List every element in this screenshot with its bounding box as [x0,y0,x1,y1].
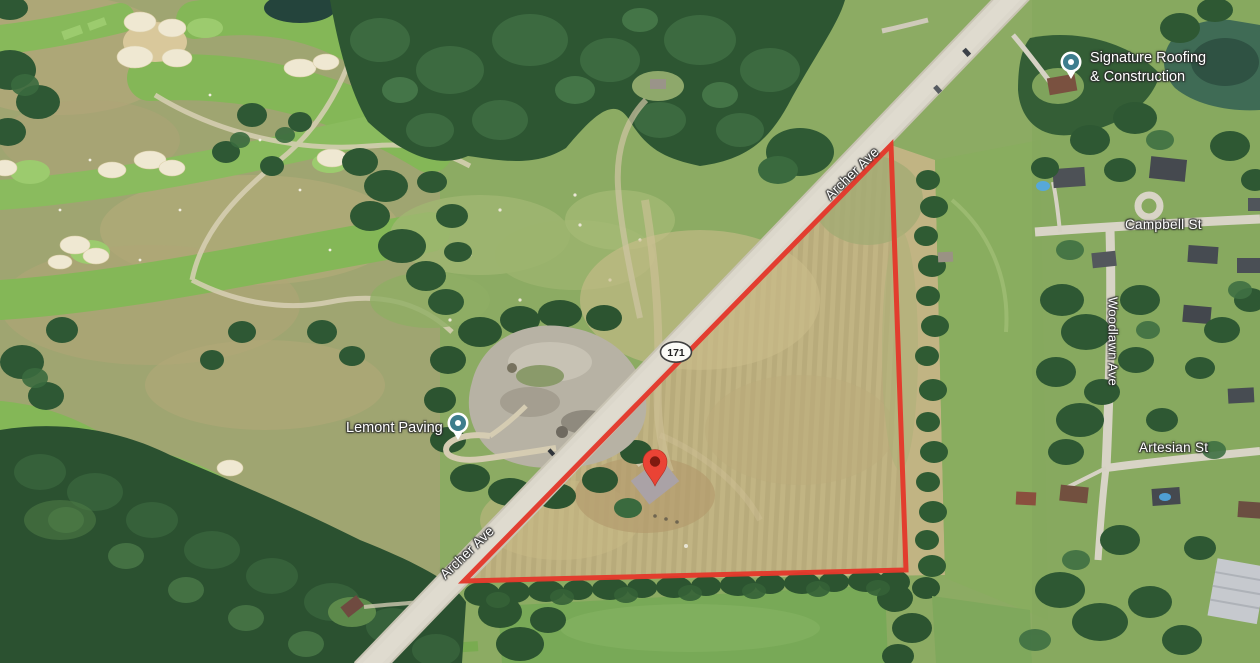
street-label-woodlawn-ave: Woodlawn Ave [1106,282,1121,402]
street-label-campbell-st: Campbell St [1125,217,1202,232]
street-label-artesian-st: Artesian St [1139,440,1208,455]
poi-marker-lemont-paving[interactable] [447,412,469,442]
route-shield-number: 171 [667,347,685,359]
poi-label-line2: & Construction [1090,68,1206,87]
pin-body [643,450,667,487]
pin-inner-dot [650,456,660,466]
pasture-strip [935,140,1048,620]
property-pin-marker[interactable] [641,447,669,487]
poi-marker-signature-roofing[interactable] [1060,51,1082,81]
satellite-map[interactable]: 171 Signature Roofing & Construction Lem… [0,0,1260,663]
route-171-shield: 171 [661,342,692,362]
pool [1036,181,1050,191]
poi-label-line1: Signature Roofing [1090,49,1206,68]
poi-label-signature-roofing[interactable]: Signature Roofing & Construction [1090,49,1206,87]
pool [1159,493,1171,501]
poi-pin-dot [1068,59,1074,65]
satellite-imagery: 171 [0,0,1260,663]
residential-area [1013,0,1260,663]
poi-label-lemont-paving[interactable]: Lemont Paving [346,419,438,438]
poi-pin-dot [455,420,461,426]
